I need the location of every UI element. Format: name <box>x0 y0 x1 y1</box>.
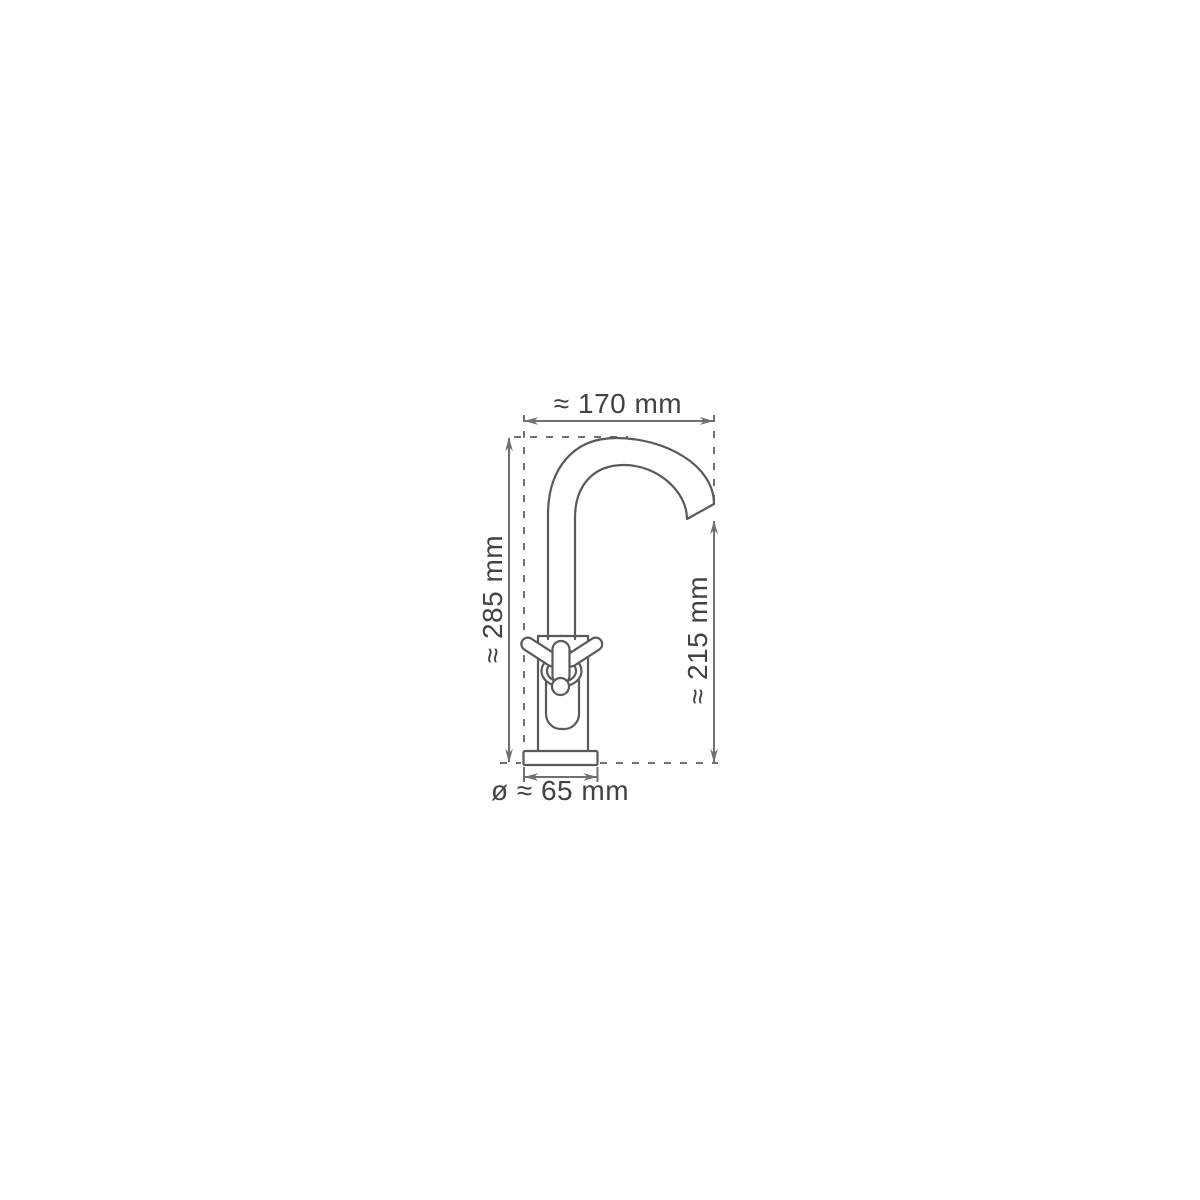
faucet-dimension-diagram: ≈ 170 mm ≈ 285 mm ≈ 215 mm ø ≈ 65 mm <box>0 0 1200 1200</box>
spout-height-dimension-label: ≈ 215 mm <box>682 576 713 704</box>
technical-drawing-page: ≈ 170 mm ≈ 285 mm ≈ 215 mm ø ≈ 65 mm <box>0 0 1200 1200</box>
width-dimension-label: ≈ 170 mm <box>554 388 682 419</box>
base-diameter-dimension-label: ø ≈ 65 mm <box>491 775 629 806</box>
total-height-dimension-label: ≈ 285 mm <box>477 535 508 663</box>
base-plate <box>524 751 598 765</box>
cross-handle <box>519 635 605 695</box>
handle-center-knob <box>552 678 569 695</box>
